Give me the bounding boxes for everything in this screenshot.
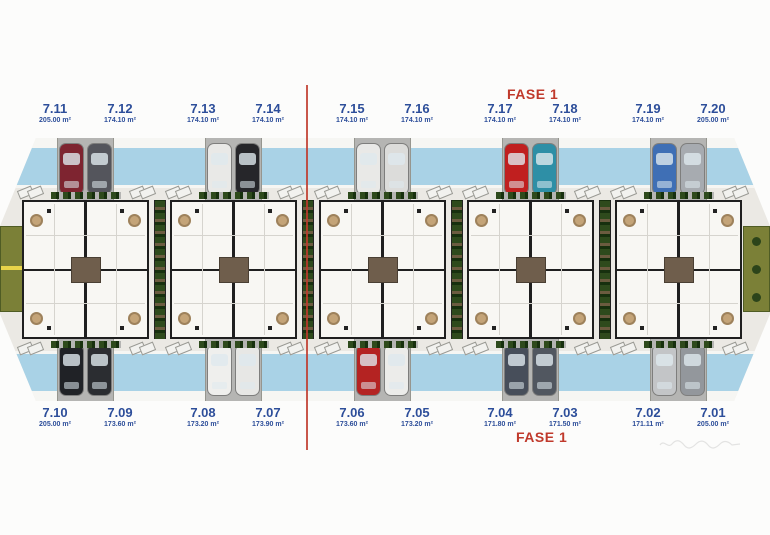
furniture-dot xyxy=(47,209,51,213)
planter-hedge xyxy=(199,341,269,348)
planter-hedge xyxy=(348,341,418,348)
unit-label: 7.18 174.10 m² xyxy=(529,102,601,125)
car-rear-window xyxy=(361,181,376,188)
room-divider xyxy=(471,303,590,304)
unit-label: 7.12 174.10 m² xyxy=(84,102,156,125)
car-windshield xyxy=(508,354,525,366)
room-divider xyxy=(647,204,648,335)
block xyxy=(161,138,306,401)
furniture-dot xyxy=(120,209,124,213)
car xyxy=(533,345,556,395)
unit-label: 7.03 171.50 m² xyxy=(529,406,601,429)
unit-area: 173.20 m² xyxy=(167,420,239,429)
room-divider xyxy=(709,204,710,335)
terrace-parasol xyxy=(276,312,289,325)
unit-label: 7.09 173.60 m² xyxy=(84,406,156,429)
room-divider xyxy=(323,235,442,236)
furniture-dot xyxy=(417,326,421,330)
unit-number: 7.09 xyxy=(84,406,156,420)
car-rear-window xyxy=(657,181,672,188)
car-windshield xyxy=(656,354,673,366)
room-divider xyxy=(413,204,414,335)
unit-number: 7.17 xyxy=(464,102,536,116)
planter-hedge xyxy=(496,192,566,199)
planter-hedge xyxy=(348,192,418,199)
planter-hedge xyxy=(199,192,269,199)
terrace-parasol xyxy=(178,214,191,227)
unit-area: 205.00 m² xyxy=(19,420,91,429)
car xyxy=(208,345,231,395)
hedge-strip xyxy=(451,200,463,339)
furniture-dot xyxy=(640,326,644,330)
terrace-parasol xyxy=(573,214,586,227)
car xyxy=(208,144,231,194)
terrace-parasol xyxy=(721,312,734,325)
car-rear-window xyxy=(240,181,255,188)
terrace-parasol xyxy=(425,312,438,325)
car-windshield xyxy=(211,354,228,366)
block xyxy=(606,138,751,401)
car-windshield xyxy=(508,153,525,165)
car-rear-window xyxy=(212,181,227,188)
unit-label: 7.08 173.20 m² xyxy=(167,406,239,429)
hedge-strip xyxy=(599,200,611,339)
unit-area: 174.10 m² xyxy=(529,116,601,125)
unit-number: 7.05 xyxy=(381,406,453,420)
car-rear-window xyxy=(92,382,107,389)
unit-area: 171.80 m² xyxy=(464,420,536,429)
car-rear-window xyxy=(685,181,700,188)
planter-hedge xyxy=(51,192,121,199)
car-windshield xyxy=(536,153,553,165)
terrace-parasol xyxy=(128,214,141,227)
floor-plan-page: FASE 1 FASE 1 7.11 205.00 m² 7.12 174.10… xyxy=(0,0,770,535)
furniture-dot xyxy=(268,326,272,330)
car-windshield xyxy=(360,153,377,165)
unit-label: 7.06 173.60 m² xyxy=(316,406,388,429)
car xyxy=(60,144,83,194)
car xyxy=(533,144,556,194)
car-rear-window xyxy=(64,382,79,389)
car-windshield xyxy=(684,153,701,165)
unit-area: 173.60 m² xyxy=(316,420,388,429)
furniture-dot xyxy=(417,209,421,213)
car-windshield xyxy=(239,153,256,165)
stairwell xyxy=(368,257,398,283)
unit-area: 174.10 m² xyxy=(84,116,156,125)
room-divider xyxy=(26,235,145,236)
terrace-parasol xyxy=(721,214,734,227)
furniture-dot xyxy=(344,326,348,330)
tree-icon xyxy=(752,293,761,302)
hedge-strip xyxy=(302,200,314,339)
terrace-parasol xyxy=(128,312,141,325)
car xyxy=(236,144,259,194)
furniture-dot xyxy=(47,326,51,330)
unit-area: 171.50 m² xyxy=(529,420,601,429)
site-plan xyxy=(0,138,770,401)
room-divider xyxy=(471,235,590,236)
stairwell xyxy=(219,257,249,283)
furniture-dot xyxy=(565,209,569,213)
car xyxy=(505,144,528,194)
car-rear-window xyxy=(509,382,524,389)
unit-label: 7.20 205.00 m² xyxy=(677,102,749,125)
unit-area: 174.10 m² xyxy=(316,116,388,125)
unit-area: 174.10 m² xyxy=(167,116,239,125)
car-rear-window xyxy=(685,382,700,389)
unit-area: 205.00 m² xyxy=(677,420,749,429)
furniture-dot xyxy=(713,209,717,213)
furniture-dot xyxy=(492,209,496,213)
unit-area: 173.90 m² xyxy=(232,420,304,429)
unit-label: 7.07 173.90 m² xyxy=(232,406,304,429)
block xyxy=(310,138,455,401)
furniture-dot xyxy=(565,326,569,330)
block xyxy=(13,138,158,401)
car-windshield xyxy=(684,354,701,366)
unit-number: 7.16 xyxy=(381,102,453,116)
car-rear-window xyxy=(240,382,255,389)
car-windshield xyxy=(360,354,377,366)
unit-number: 7.01 xyxy=(677,406,749,420)
car-windshield xyxy=(388,354,405,366)
unit-label: 7.19 174.10 m² xyxy=(612,102,684,125)
planter-hedge xyxy=(644,341,714,348)
phase-divider-line xyxy=(306,85,308,450)
hedge-strip xyxy=(154,200,166,339)
terrace-parasol xyxy=(30,214,43,227)
unit-number: 7.07 xyxy=(232,406,304,420)
unit-number: 7.06 xyxy=(316,406,388,420)
room-divider xyxy=(499,204,500,335)
room-divider xyxy=(351,204,352,335)
car-windshield xyxy=(388,153,405,165)
room-divider xyxy=(264,204,265,335)
unit-label: 7.16 174.10 m² xyxy=(381,102,453,125)
furniture-dot xyxy=(713,326,717,330)
terrace-parasol xyxy=(425,214,438,227)
room-divider xyxy=(174,235,293,236)
furniture-dot xyxy=(640,209,644,213)
unit-number: 7.19 xyxy=(612,102,684,116)
car xyxy=(357,144,380,194)
car xyxy=(357,345,380,395)
car-rear-window xyxy=(509,181,524,188)
furniture-dot xyxy=(195,326,199,330)
tree-icon xyxy=(752,265,761,274)
terrace-parasol xyxy=(327,214,340,227)
car-windshield xyxy=(536,354,553,366)
unit-label: 7.05 173.20 m² xyxy=(381,406,453,429)
car xyxy=(653,144,676,194)
planter-hedge xyxy=(644,192,714,199)
car-rear-window xyxy=(64,181,79,188)
terrace-parasol xyxy=(475,214,488,227)
unit-number: 7.04 xyxy=(464,406,536,420)
stairwell xyxy=(71,257,101,283)
car-rear-window xyxy=(389,382,404,389)
car-rear-window xyxy=(657,382,672,389)
unit-area: 171.11 m² xyxy=(612,420,684,429)
room-divider xyxy=(202,204,203,335)
unit-label: 7.11 205.00 m² xyxy=(19,102,91,125)
car xyxy=(653,345,676,395)
unit-label: 7.14 174.10 m² xyxy=(232,102,304,125)
room-divider xyxy=(619,235,738,236)
car xyxy=(385,345,408,395)
furniture-dot xyxy=(268,209,272,213)
car-rear-window xyxy=(537,382,552,389)
unit-label: 7.17 174.10 m² xyxy=(464,102,536,125)
room-divider xyxy=(323,303,442,304)
signature-watermark xyxy=(658,436,742,452)
car xyxy=(385,144,408,194)
car xyxy=(681,144,704,194)
car xyxy=(88,144,111,194)
unit-label: 7.01 205.00 m² xyxy=(677,406,749,429)
car-rear-window xyxy=(361,382,376,389)
block xyxy=(458,138,603,401)
car xyxy=(88,345,111,395)
car xyxy=(505,345,528,395)
terrace-parasol xyxy=(573,312,586,325)
car xyxy=(60,345,83,395)
terrace-parasol xyxy=(475,312,488,325)
unit-label: 7.02 171.11 m² xyxy=(612,406,684,429)
unit-label: 7.15 174.10 m² xyxy=(316,102,388,125)
unit-number: 7.15 xyxy=(316,102,388,116)
unit-area: 205.00 m² xyxy=(677,116,749,125)
terrace-parasol xyxy=(30,312,43,325)
car-windshield xyxy=(656,153,673,165)
car xyxy=(236,345,259,395)
unit-label: 7.13 174.10 m² xyxy=(167,102,239,125)
terrace-parasol xyxy=(178,312,191,325)
car-rear-window xyxy=(92,181,107,188)
unit-number: 7.20 xyxy=(677,102,749,116)
terrace-parasol xyxy=(276,214,289,227)
terrace-parasol xyxy=(327,312,340,325)
room-divider xyxy=(561,204,562,335)
car-windshield xyxy=(239,354,256,366)
car-windshield xyxy=(63,354,80,366)
room-divider xyxy=(116,204,117,335)
stairwell xyxy=(664,257,694,283)
car xyxy=(681,345,704,395)
unit-number: 7.12 xyxy=(84,102,156,116)
phase-label-top: FASE 1 xyxy=(507,86,558,102)
tree-icon xyxy=(752,237,761,246)
unit-number: 7.08 xyxy=(167,406,239,420)
unit-area: 174.10 m² xyxy=(464,116,536,125)
unit-number: 7.11 xyxy=(19,102,91,116)
unit-area: 205.00 m² xyxy=(19,116,91,125)
room-divider xyxy=(54,204,55,335)
furniture-dot xyxy=(492,326,496,330)
unit-number: 7.18 xyxy=(529,102,601,116)
room-divider xyxy=(619,303,738,304)
terrace-parasol xyxy=(623,312,636,325)
furniture-dot xyxy=(195,209,199,213)
room-divider xyxy=(26,303,145,304)
car-windshield xyxy=(91,354,108,366)
unit-area: 174.10 m² xyxy=(381,116,453,125)
car-windshield xyxy=(211,153,228,165)
phase-label-bottom: FASE 1 xyxy=(516,429,567,445)
unit-number: 7.14 xyxy=(232,102,304,116)
car-rear-window xyxy=(212,382,227,389)
unit-area: 174.10 m² xyxy=(612,116,684,125)
unit-area: 173.60 m² xyxy=(84,420,156,429)
unit-number: 7.10 xyxy=(19,406,91,420)
furniture-dot xyxy=(120,326,124,330)
car-windshield xyxy=(63,153,80,165)
unit-number: 7.03 xyxy=(529,406,601,420)
car-rear-window xyxy=(389,181,404,188)
car-windshield xyxy=(91,153,108,165)
furniture-dot xyxy=(344,209,348,213)
unit-label: 7.10 205.00 m² xyxy=(19,406,91,429)
unit-number: 7.02 xyxy=(612,406,684,420)
unit-label: 7.04 171.80 m² xyxy=(464,406,536,429)
terrace-parasol xyxy=(623,214,636,227)
unit-area: 173.20 m² xyxy=(381,420,453,429)
stairwell xyxy=(516,257,546,283)
unit-number: 7.13 xyxy=(167,102,239,116)
planter-hedge xyxy=(51,341,121,348)
planter-hedge xyxy=(496,341,566,348)
unit-area: 174.10 m² xyxy=(232,116,304,125)
room-divider xyxy=(174,303,293,304)
car-rear-window xyxy=(537,181,552,188)
